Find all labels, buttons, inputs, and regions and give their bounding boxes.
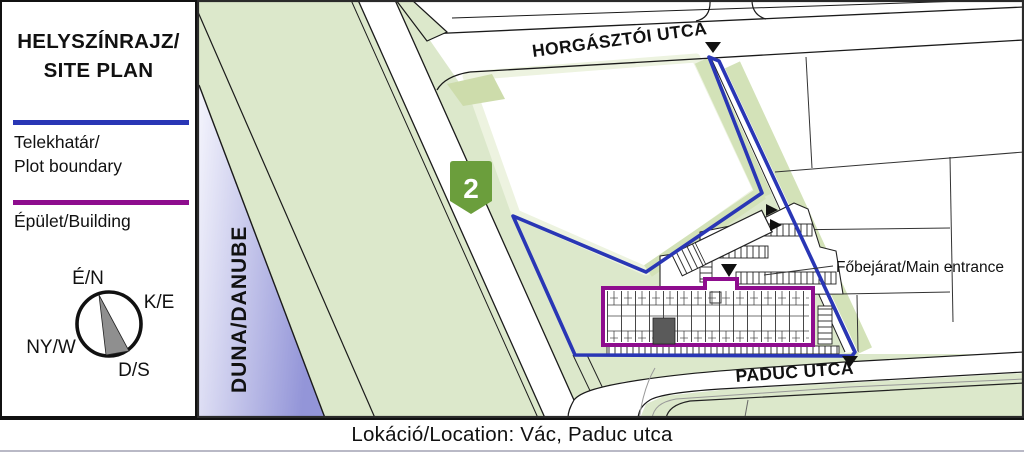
location-label: Lokáció/Location: Vác, Paduc utca	[351, 423, 672, 447]
building-label-text: Épület/Building	[14, 209, 131, 233]
parking-row-east	[818, 306, 832, 344]
plot-boundary-swatch	[13, 120, 189, 125]
parking-row-south	[607, 346, 839, 354]
compass-west-label: NY/W	[26, 337, 76, 358]
page-title-line2: SITE PLAN	[2, 56, 195, 85]
plot-boundary-label-hu: Telekhatár/	[14, 130, 122, 154]
compass-south-label: D/S	[118, 360, 150, 381]
page-title-line1: HELYSZÍNRAJZ/	[2, 27, 195, 56]
road-sign-number: 2	[463, 173, 479, 204]
plot-boundary-label-en: Plot boundary	[14, 154, 122, 178]
river-label: DUNA/DANUBE	[228, 226, 251, 393]
compass-north-label: É/N	[72, 268, 104, 289]
page-title: HELYSZÍNRAJZ/ SITE PLAN	[2, 27, 195, 85]
site-plan-page: Főbejárat/Main entrance 2 HORGÁSZTÓI UTC…	[0, 0, 1024, 452]
plot-boundary-legend-label: Telekhatár/ Plot boundary	[14, 130, 122, 178]
building-legend-label: Épület/Building	[14, 209, 131, 233]
location-bar: Lokáció/Location: Vác, Paduc utca	[0, 418, 1024, 452]
building-swatch	[13, 200, 189, 205]
building-floorplan	[607, 291, 809, 342]
compass-east-label: K/E	[144, 292, 175, 313]
legend-panel: HELYSZÍNRAJZ/ SITE PLAN Telekhatár/ Plot…	[0, 0, 197, 418]
building-stair-core	[653, 318, 675, 344]
compass-rose: É/N K/E NY/W D/S	[2, 248, 194, 398]
entrance-label: Főbejárat/Main entrance	[836, 259, 1004, 276]
